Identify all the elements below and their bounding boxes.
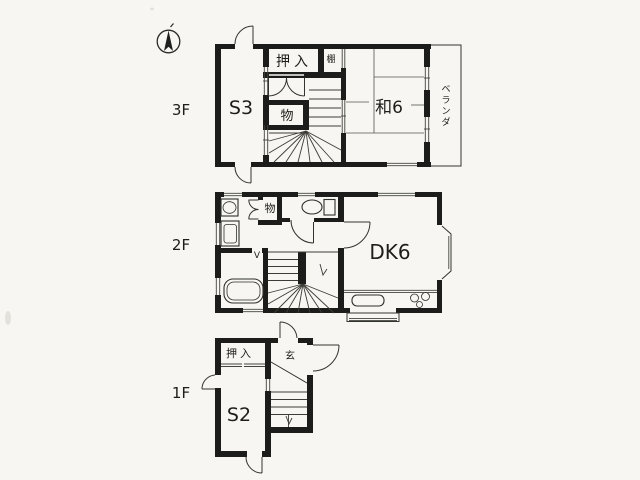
floor-label-2f: 2F [172, 236, 190, 254]
bay-window-east [442, 226, 451, 279]
svg-text:ダ: ダ [441, 116, 450, 128]
room-label-s2: S2 [227, 404, 251, 426]
doorway-s2-hall [266, 379, 269, 391]
wall [263, 155, 269, 167]
window-dk-north [378, 193, 415, 195]
wall [315, 192, 378, 197]
wall [265, 338, 271, 367]
door-s3-north [235, 26, 253, 44]
entrance-door [313, 345, 339, 371]
wall [215, 451, 247, 457]
svg-text:ベ: ベ [441, 85, 450, 95]
compass-tick [171, 24, 174, 28]
wall [424, 142, 430, 167]
stair-direction-arrow [286, 416, 292, 424]
wall [424, 44, 430, 67]
wall [215, 248, 252, 253]
staircase-1f [271, 392, 307, 427]
wall [251, 162, 387, 167]
floor-2f: 2F [172, 192, 451, 322]
wall [263, 44, 269, 67]
wall [437, 192, 442, 225]
window-west-lower [216, 278, 219, 295]
room-label-oshiire-1f: 押入 [226, 346, 254, 360]
room-label-tana: 棚 [326, 53, 335, 65]
svg-text:ン: ン [441, 107, 450, 117]
scan-speck [5, 311, 11, 325]
wall [263, 248, 268, 313]
double-doors-oshiire-3f [269, 78, 305, 96]
svg-text:ラ: ラ [441, 95, 450, 106]
wall [265, 427, 313, 433]
room-label-genkan: 玄 [285, 349, 295, 362]
wall [215, 308, 243, 313]
wall [338, 192, 344, 222]
wall [307, 375, 313, 433]
wall [341, 133, 346, 167]
door-toilet [291, 220, 314, 243]
wall [258, 220, 282, 225]
window-west-upper [216, 223, 219, 245]
floor-3f: 3F [172, 26, 461, 183]
room-label-mono-2f: 物 [265, 201, 276, 215]
room-label-s3: S3 [229, 97, 253, 119]
window-bath-south [243, 309, 263, 311]
wall [396, 308, 442, 313]
wall [265, 391, 271, 457]
window-washitsu-south [387, 163, 417, 165]
wall [424, 90, 430, 117]
room-label-dk6: DK6 [369, 240, 410, 264]
wall [341, 68, 346, 100]
fusuma-oshiire-1f [221, 364, 265, 367]
wall [265, 367, 271, 379]
room-label-mono-3f: 物 [280, 109, 293, 124]
wall [215, 338, 221, 375]
wall [262, 451, 271, 457]
wall [263, 100, 309, 105]
floor-1f: 1F [172, 322, 339, 473]
wall [318, 44, 324, 78]
wall [258, 192, 263, 200]
wall [437, 280, 442, 313]
wall [215, 192, 221, 223]
compass-needle [164, 31, 173, 52]
floor-plan-page: 3F [0, 0, 640, 480]
wall [282, 218, 290, 222]
wall [215, 162, 235, 167]
door-s2-south [246, 457, 262, 473]
room-label-oshiire-3f: 押入 [276, 54, 312, 70]
window-toilet-north [298, 193, 315, 195]
shelf-front [342, 49, 345, 68]
room-genkan [271, 343, 307, 383]
wall [307, 338, 313, 345]
window-washroom-north [224, 193, 242, 195]
room-label-washitsu: 和6 [375, 98, 403, 118]
compass-north-icon [157, 24, 180, 53]
window-washitsu-east-lower [424, 117, 430, 142]
wall [215, 44, 221, 167]
floor-plan-drawing: 3F [0, 0, 640, 480]
room-veranda [431, 46, 461, 166]
kitchen-window-bay [347, 313, 399, 322]
wall [263, 95, 269, 125]
window-washitsu-east-upper [424, 67, 430, 90]
wall [263, 125, 309, 130]
door-s3-south [235, 167, 251, 183]
scan-speck [150, 8, 154, 11]
bathroom-door-mark: V [254, 251, 261, 261]
wall [215, 388, 221, 457]
stair-direction-arrow [320, 264, 327, 275]
door-1f-north [280, 322, 297, 338]
sliding-door-washitsu [341, 100, 346, 133]
wall [242, 192, 298, 197]
wall [338, 248, 344, 313]
wall [253, 44, 431, 49]
wall-stair-stub [298, 252, 306, 284]
floor-label-3f: 3F [172, 101, 190, 119]
room-label-veranda: ベ ラ ン ダ [441, 85, 450, 128]
floor-label-1f: 1F [172, 384, 190, 402]
door-s2-west [202, 375, 215, 389]
